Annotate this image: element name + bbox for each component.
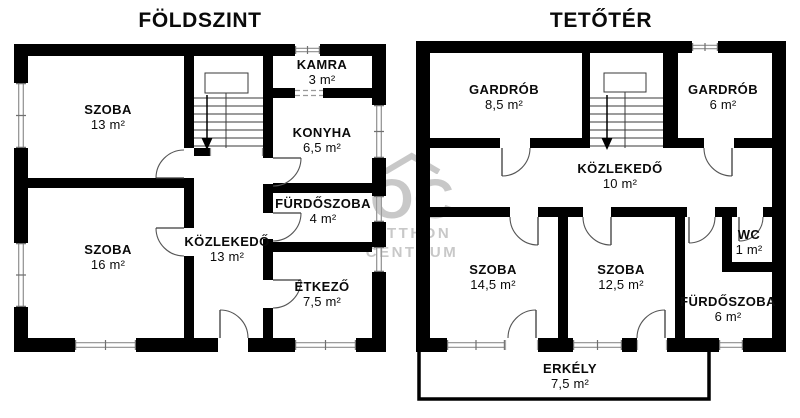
room-label-wc: WC 1 m² bbox=[736, 227, 763, 257]
room-name: KAMRA bbox=[297, 57, 347, 72]
room-label-furdoszoba-attic: FÜRDŐSZOBA 6 m² bbox=[680, 294, 776, 324]
room-area: 8,5 m² bbox=[469, 97, 539, 112]
room-label-kozlekedo-attic: KÖZLEKEDŐ 10 m² bbox=[577, 161, 662, 191]
room-label-szoba-125: SZOBA 12,5 m² bbox=[597, 262, 645, 292]
room-area: 10 m² bbox=[577, 176, 662, 191]
room-name: SZOBA bbox=[469, 262, 517, 277]
room-label-szoba-16: SZOBA 16 m² bbox=[84, 242, 132, 272]
room-area: 6,5 m² bbox=[293, 140, 352, 155]
ground-floor-title: FÖLDSZINT bbox=[138, 9, 261, 33]
room-name: WC bbox=[736, 227, 763, 242]
room-name: SZOBA bbox=[597, 262, 645, 277]
room-area: 6 m² bbox=[688, 97, 758, 112]
attic-stairs-icon bbox=[590, 73, 663, 150]
floor-plan-drawing bbox=[0, 0, 800, 418]
attic-floor-title: TETŐTÉR bbox=[550, 9, 652, 33]
room-area: 16 m² bbox=[84, 257, 132, 272]
room-area: 13 m² bbox=[84, 117, 132, 132]
room-area: 4 m² bbox=[275, 211, 371, 226]
room-label-etkezo: ÉTKEZŐ 7,5 m² bbox=[294, 279, 349, 309]
room-area: 13 m² bbox=[184, 249, 269, 264]
room-label-furdoszoba-ground: FÜRDŐSZOBA 4 m² bbox=[275, 196, 371, 226]
room-area: 7,5 m² bbox=[543, 376, 597, 391]
room-area: 6 m² bbox=[680, 309, 776, 324]
room-label-szoba-145: SZOBA 14,5 m² bbox=[469, 262, 517, 292]
room-name: SZOBA bbox=[84, 102, 132, 117]
room-area: 1 m² bbox=[736, 242, 763, 257]
room-label-szoba-13: SZOBA 13 m² bbox=[84, 102, 132, 132]
room-name: FÜRDŐSZOBA bbox=[275, 196, 371, 211]
room-label-erkely: ERKÉLY 7,5 m² bbox=[543, 361, 597, 391]
room-name: ÉTKEZŐ bbox=[294, 279, 349, 294]
room-area: 14,5 m² bbox=[469, 277, 517, 292]
room-name: ERKÉLY bbox=[543, 361, 597, 376]
room-name: KÖZLEKEDŐ bbox=[577, 161, 662, 176]
room-name: GARDRÓB bbox=[469, 82, 539, 97]
room-label-gardrob-85: GARDRÓB 8,5 m² bbox=[469, 82, 539, 112]
room-label-gardrob-6: GARDRÓB 6 m² bbox=[688, 82, 758, 112]
floor-plan-canvas: FÖLDSZINT TETŐTÉR SZOBA 13 m² KAMRA 3 m²… bbox=[0, 0, 800, 418]
room-area: 3 m² bbox=[297, 72, 347, 87]
room-area: 12,5 m² bbox=[597, 277, 645, 292]
room-name: FÜRDŐSZOBA bbox=[680, 294, 776, 309]
room-label-kamra: KAMRA 3 m² bbox=[297, 57, 347, 87]
room-name: KÖZLEKEDŐ bbox=[184, 234, 269, 249]
ground-stairs-icon bbox=[194, 73, 263, 150]
room-label-konyha: KONYHA 6,5 m² bbox=[293, 125, 352, 155]
room-name: GARDRÓB bbox=[688, 82, 758, 97]
room-label-kozlekedo-ground: KÖZLEKEDŐ 13 m² bbox=[184, 234, 269, 264]
room-name: KONYHA bbox=[293, 125, 352, 140]
room-name: SZOBA bbox=[84, 242, 132, 257]
room-area: 7,5 m² bbox=[294, 294, 349, 309]
